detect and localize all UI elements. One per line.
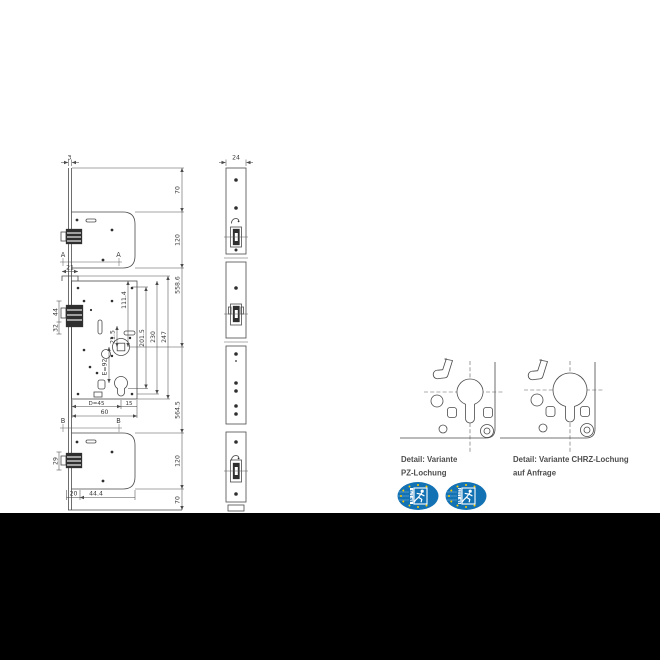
section-label-a-right: A <box>116 251 121 259</box>
badge-standard-label: EN 179 <box>409 489 413 502</box>
dim-bottom-latch: 29 <box>53 457 60 465</box>
front-view: 3 A A <box>53 155 185 511</box>
dim-follower-top: 111.4 <box>121 291 128 309</box>
dim-latch-upper: 44 <box>53 308 60 316</box>
dim-bottom-left: 20 <box>70 491 78 498</box>
catalog-page: 3 A A <box>0 0 660 660</box>
dim-bottom-case-height: 120 <box>175 455 182 467</box>
section-label-b-left: B <box>61 417 66 425</box>
profile-segment-3 <box>226 346 246 424</box>
backset-dimensions: D=45 15 60 <box>72 400 137 418</box>
dim-bottom-width: 44.4 <box>89 491 103 498</box>
screw-icon <box>581 424 594 437</box>
top-latch-bolt <box>61 229 82 244</box>
dim-label: 3 <box>68 155 72 162</box>
main-lock-case: 21 <box>62 265 137 400</box>
main-latch-bolt: 44 32 <box>53 301 84 334</box>
dim-top-case-height: 120 <box>175 234 182 246</box>
profile-segment-4 <box>224 432 248 502</box>
detail-pz-caption-line1: Detail: Variante <box>401 455 458 464</box>
dim-cyl-gap: 21.5 <box>110 330 117 344</box>
pz-cylinder-hole <box>457 379 483 423</box>
detail-pz-caption-line2: PZ-Lochung <box>401 469 447 478</box>
badge-en179: EN 179 <box>398 482 439 510</box>
dim-case-width: 60 <box>101 409 109 416</box>
dim-profile-width: 24 <box>232 155 240 162</box>
side-view: 24 <box>219 155 253 512</box>
detail-view-pz: Detail: Variante PZ-Lochung <box>400 359 503 478</box>
dim-mid-height: 230 <box>150 331 157 343</box>
section-label-b-right: B <box>116 417 121 425</box>
dim-top-offset: 70 <box>175 186 182 194</box>
badge-standard-label: EN 1125 <box>457 489 461 504</box>
dim-entry: E=92 <box>102 358 109 375</box>
lever-handle-icon <box>433 359 452 379</box>
detail-view-chrz: Detail: Variante CHRZ-Lochung auf Anfrag… <box>500 360 629 478</box>
screw-icon <box>481 425 494 438</box>
detail-chrz-caption-line1: Detail: Variante CHRZ-Lochung <box>513 455 629 464</box>
section-line-b: B B <box>60 417 122 432</box>
section-label-a-left: A <box>61 251 66 259</box>
dim-step-width: 21 <box>66 265 74 272</box>
profile-segment-2 <box>224 262 248 342</box>
dim-upper-span: 558.6 <box>175 276 182 294</box>
dim-case-height: 247 <box>161 331 168 343</box>
dim-backset: D=45 <box>88 401 105 407</box>
dim-back-edge: 15 <box>125 401 133 407</box>
profile-end-cap <box>228 505 244 511</box>
badge-en1125: EN 1125 <box>446 482 487 510</box>
lock-technical-drawing: 3 A A <box>0 0 660 660</box>
bottom-latch-bolt: 29 <box>53 452 83 470</box>
dim-inner-height: 201.5 <box>139 329 146 347</box>
bottom-dimensions: 20 44.4 <box>67 490 136 500</box>
profile-segment-1 <box>224 168 248 258</box>
dim-lower-span: 564.5 <box>175 401 182 419</box>
dim-bottom-offset: 70 <box>175 496 182 504</box>
lever-handle-icon <box>528 360 547 380</box>
dim-latch-lower: 32 <box>53 324 60 332</box>
dim-rail-width: 3 <box>61 155 79 167</box>
detail-chrz-caption-line2: auf Anfrage <box>513 469 557 478</box>
letterbox-band <box>0 513 660 660</box>
